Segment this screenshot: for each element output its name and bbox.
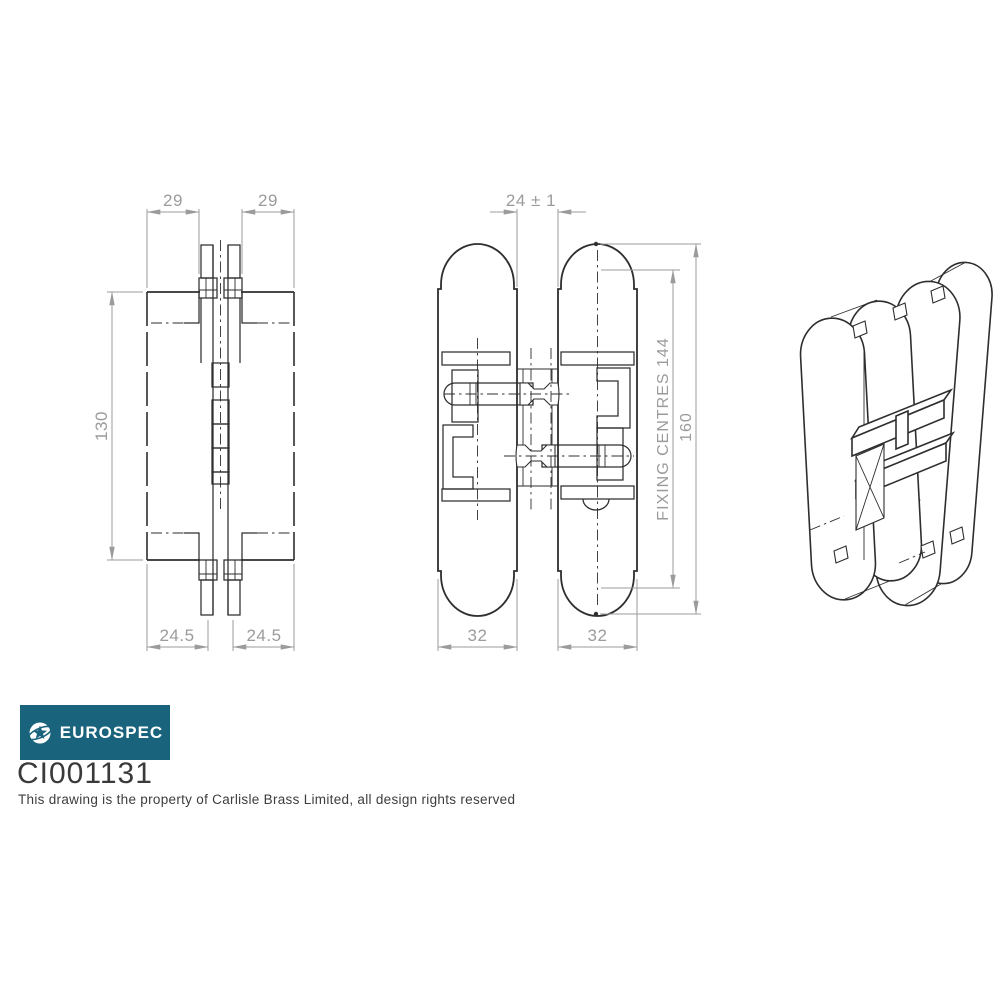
eurospec-logo: EUROSPEC bbox=[20, 705, 170, 760]
dim-label-fixing-centres-144: FIXING CENTRES 144 bbox=[655, 337, 672, 520]
dim-label-24pm1: 24 ± 1 bbox=[506, 191, 556, 210]
technical-drawing: 29 29 130 24.5 24.5 bbox=[0, 0, 1000, 1000]
brand-text: EUROSPEC bbox=[60, 723, 163, 743]
dim-label-24-5-left: 24.5 bbox=[159, 626, 194, 645]
iso-view bbox=[799, 260, 995, 608]
side-view: 29 29 130 24.5 24.5 bbox=[92, 191, 294, 651]
dim-label-29-right: 29 bbox=[258, 191, 278, 210]
dim-label-29-left: 29 bbox=[163, 191, 183, 210]
dim-label-32-right: 32 bbox=[588, 626, 608, 645]
product-code: CI001131 bbox=[17, 757, 153, 791]
dim-label-130: 130 bbox=[92, 411, 111, 441]
dim-label-24-5-right: 24.5 bbox=[246, 626, 281, 645]
dim-label-32-left: 32 bbox=[468, 626, 488, 645]
copyright-disclaimer: This drawing is the property of Carlisle… bbox=[18, 792, 515, 807]
globe-star-icon bbox=[27, 720, 53, 746]
front-view: 24 ± 1 160 FIXING CENTRES 144 32 32 bbox=[438, 191, 701, 651]
dim-label-160: 160 bbox=[678, 412, 695, 442]
